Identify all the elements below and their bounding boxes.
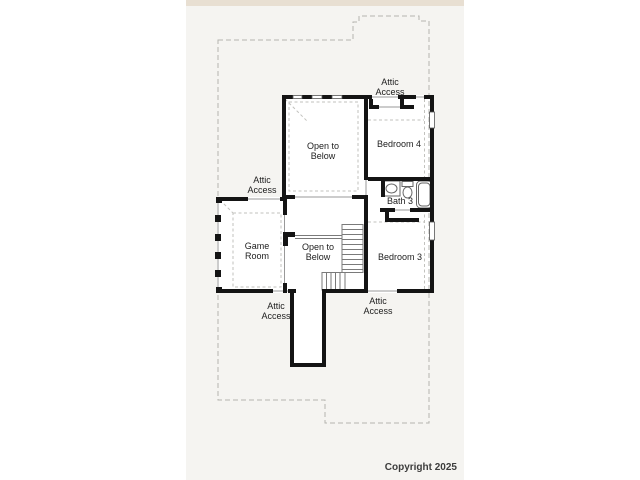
wall bbox=[385, 212, 389, 222]
wall bbox=[282, 95, 286, 200]
window-mullion bbox=[215, 252, 221, 259]
wall bbox=[430, 95, 434, 112]
room-label-bedroom-3: Bedroom 3 bbox=[378, 252, 422, 262]
window-mullion bbox=[215, 215, 221, 222]
wall bbox=[288, 289, 296, 293]
copyright-notice: Copyright 2025 San Antonio Board of Real… bbox=[304, 451, 457, 480]
wall bbox=[380, 208, 395, 212]
wall bbox=[322, 95, 332, 99]
floor-plan-drawing bbox=[0, 0, 640, 480]
room-label-open-to-below-lower: Open to Below bbox=[302, 242, 334, 262]
window bbox=[430, 112, 435, 128]
attic-access-label-mid-left: Attic Access bbox=[247, 175, 276, 195]
sink-icon bbox=[386, 184, 397, 193]
window bbox=[293, 96, 302, 99]
wall bbox=[283, 283, 287, 293]
stairwell-extension-fill bbox=[291, 293, 325, 365]
wall bbox=[369, 105, 379, 109]
wall bbox=[216, 197, 222, 203]
window-mullion bbox=[215, 234, 221, 241]
wall bbox=[288, 232, 295, 237]
wall bbox=[389, 218, 419, 222]
bathtub-inner-icon bbox=[419, 183, 431, 206]
room-label-open-to-below-upper: Open to Below bbox=[307, 141, 339, 161]
wall bbox=[290, 363, 326, 367]
wall bbox=[364, 196, 368, 293]
attic-access-label-bottom-left: Attic Access bbox=[261, 301, 290, 321]
room-label-bedroom-4: Bedroom 4 bbox=[377, 139, 421, 149]
wall bbox=[322, 289, 367, 293]
room-label-bath-3: Bath 3 bbox=[387, 196, 413, 206]
wall bbox=[283, 197, 287, 215]
wall bbox=[368, 177, 434, 181]
wall bbox=[302, 95, 312, 99]
wall bbox=[381, 181, 385, 197]
wall bbox=[397, 289, 434, 293]
window bbox=[312, 96, 322, 99]
attic-access-label-bottom-right: Attic Access bbox=[363, 296, 392, 316]
wall bbox=[283, 232, 288, 246]
wall bbox=[290, 293, 294, 367]
wall bbox=[352, 195, 368, 199]
room-label-game-room: Game Room bbox=[245, 241, 270, 261]
attic-access-label-top: Attic Access bbox=[375, 77, 404, 97]
floor-plan-page: Attic Access Open to Below Bedroom 4 Att… bbox=[0, 0, 640, 480]
window bbox=[430, 222, 435, 240]
wall bbox=[364, 95, 368, 180]
window bbox=[332, 96, 342, 99]
wall bbox=[430, 128, 434, 222]
wall bbox=[322, 293, 326, 367]
wall bbox=[430, 240, 434, 293]
window-mullion bbox=[215, 270, 221, 277]
toilet-tank-icon bbox=[402, 182, 413, 187]
wall bbox=[400, 105, 414, 109]
wall bbox=[216, 289, 273, 293]
copyright-line-1: Copyright 2025 bbox=[385, 462, 457, 473]
